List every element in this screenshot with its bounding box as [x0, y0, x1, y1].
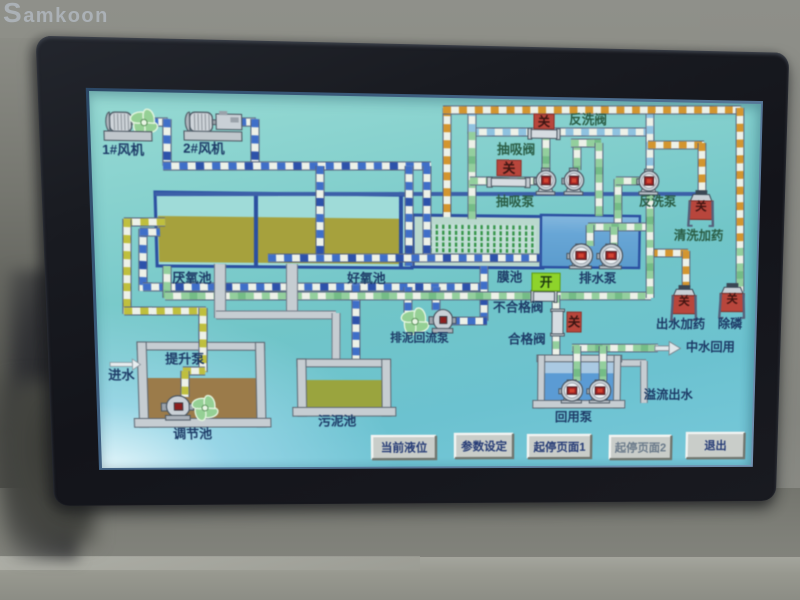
svg-text:关: 关: [503, 160, 516, 175]
svg-text:反洗泵: 反洗泵: [639, 193, 677, 208]
svg-text:合格阀: 合格阀: [508, 331, 546, 346]
svg-text:不合格阀: 不合格阀: [493, 299, 543, 314]
svg-text:污泥池: 污泥池: [318, 413, 357, 428]
svg-text:开: 开: [540, 275, 553, 289]
svg-text:起停页面2: 起停页面2: [614, 441, 667, 455]
svg-text:溢流出水: 溢流出水: [644, 387, 694, 401]
svg-text:除磷: 除磷: [718, 316, 743, 331]
svg-text:排泥回流泵: 排泥回流泵: [390, 330, 449, 344]
svg-text:关: 关: [568, 314, 581, 329]
svg-text:抽吸阀: 抽吸阀: [497, 141, 535, 157]
svg-text:回用泵: 回用泵: [555, 410, 593, 424]
svg-text:起停页面1: 起停页面1: [533, 440, 586, 454]
svg-text:膜池: 膜池: [497, 269, 523, 284]
svg-text:排水泵: 排水泵: [579, 270, 617, 285]
svg-text:1#风机: 1#风机: [102, 141, 145, 157]
svg-text:反洗阀: 反洗阀: [569, 111, 607, 127]
svg-text:清洗加药: 清洗加药: [674, 227, 724, 242]
svg-text:调节池: 调节池: [173, 426, 213, 441]
svg-text:退出: 退出: [704, 439, 727, 452]
svg-text:关: 关: [678, 294, 690, 308]
svg-text:厌氧池: 厌氧池: [172, 270, 212, 285]
svg-text:当前液位: 当前液位: [381, 441, 428, 455]
svg-text:进水: 进水: [108, 367, 135, 382]
svg-text:提升泵: 提升泵: [165, 351, 205, 366]
svg-text:关: 关: [538, 113, 551, 129]
svg-text:参数设定: 参数设定: [461, 439, 507, 453]
svg-text:2#风机: 2#风机: [183, 140, 225, 156]
svg-text:关: 关: [726, 292, 738, 306]
svg-text:抽吸泵: 抽吸泵: [496, 193, 535, 209]
svg-text:出水加药: 出水加药: [656, 316, 706, 331]
svg-text:中水回用: 中水回用: [686, 339, 735, 354]
svg-text:关: 关: [695, 199, 707, 213]
svg-text:好氧池: 好氧池: [346, 270, 386, 285]
